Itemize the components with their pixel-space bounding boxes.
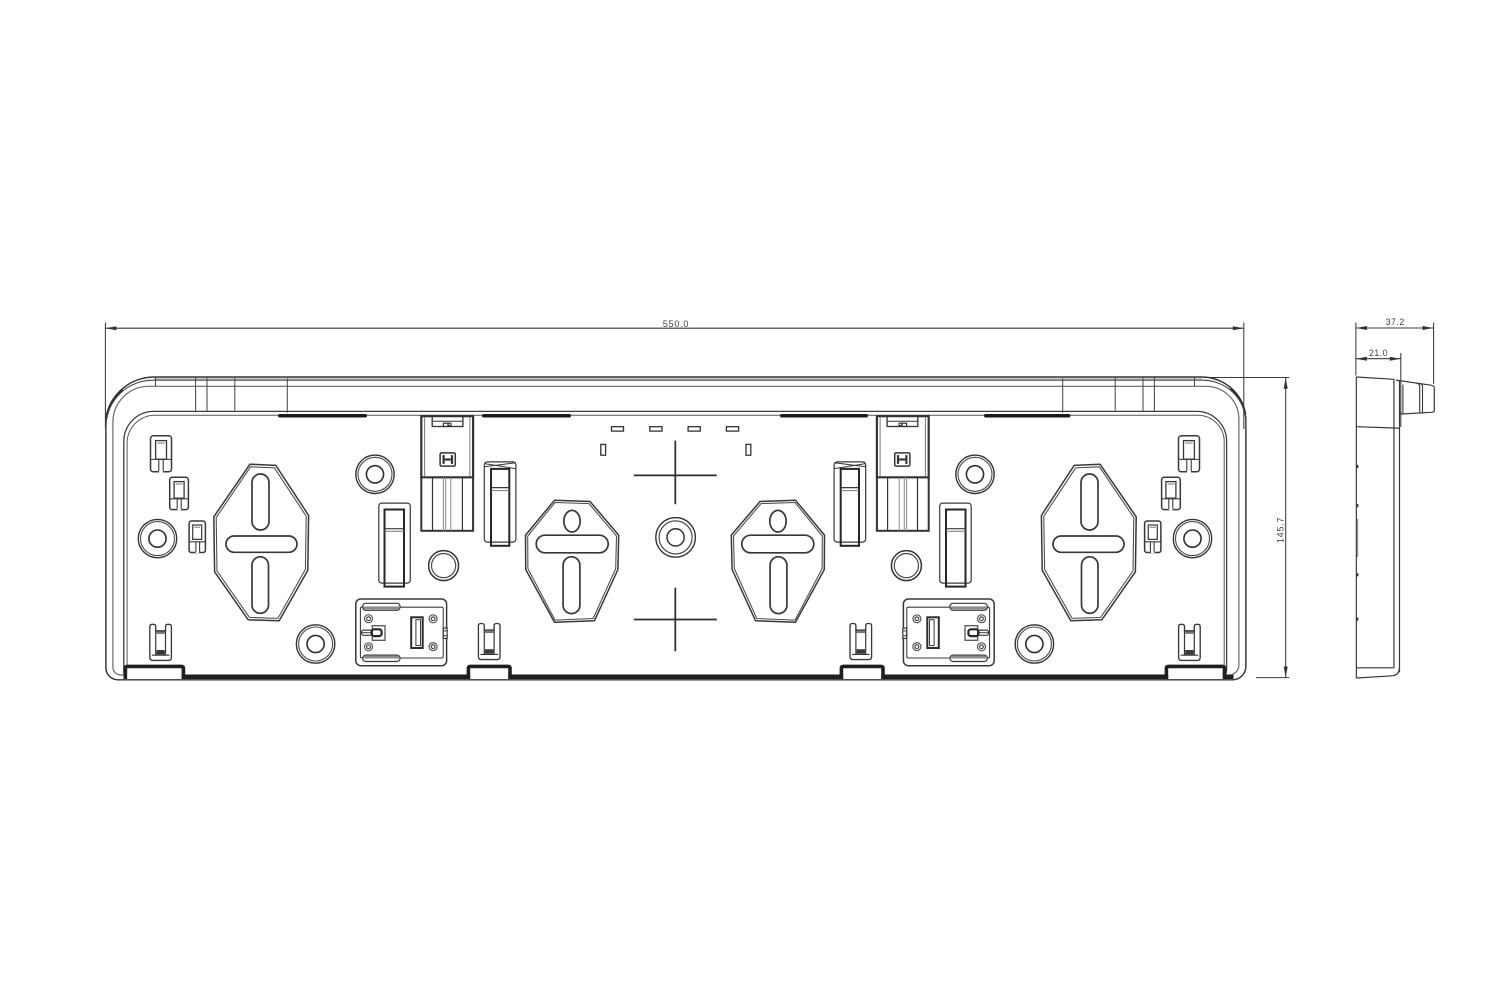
svg-text:37.2: 37.2 <box>1386 317 1405 327</box>
svg-text:145.7: 145.7 <box>1275 517 1285 544</box>
svg-text:21.0: 21.0 <box>1369 348 1388 358</box>
svg-text:550.0: 550.0 <box>663 319 690 329</box>
